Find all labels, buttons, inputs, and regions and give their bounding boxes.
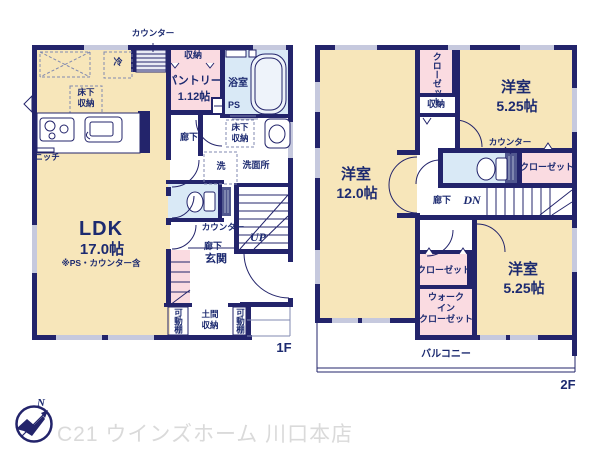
label-ldk-note: ※PS・カウンター含 bbox=[61, 259, 140, 268]
label-ldk-size: 17.0帖 bbox=[80, 242, 124, 258]
label-wic-3: クローゼット bbox=[419, 315, 473, 324]
label-closet-bl: クローゼット bbox=[417, 266, 471, 275]
label-closet-top: クローゼット bbox=[431, 52, 440, 106]
label-hallway-lower: 廊下 bbox=[204, 242, 222, 251]
label-room-br-size: 5.25帖 bbox=[503, 281, 544, 296]
label-floor-2f: 2F bbox=[560, 378, 575, 392]
floor2-stairs bbox=[487, 188, 572, 215]
label-fridge: 冷 bbox=[113, 58, 122, 67]
watermark-text: C21 ウインズホーム 川口本店 bbox=[57, 418, 353, 448]
vent-icon bbox=[24, 96, 32, 112]
label-washer: 洗 bbox=[216, 162, 225, 171]
label-hallway-2f: 廊下 bbox=[433, 196, 451, 205]
label-room-br-name: 洋室 bbox=[508, 262, 538, 278]
label-wash-underfloor-1: 床下 bbox=[231, 123, 248, 132]
label-up: UP bbox=[250, 231, 266, 244]
label-ps: PS bbox=[228, 101, 240, 110]
label-hallway-upper: 廊下 bbox=[180, 133, 198, 142]
label-shelf-right: 可動棚 bbox=[236, 308, 245, 334]
label-wic-2: イン bbox=[437, 304, 455, 313]
label-pantry-storage: 収納 bbox=[184, 51, 202, 60]
label-room-left-size: 12.0帖 bbox=[336, 186, 377, 201]
label-room-left-name: 洋室 bbox=[341, 167, 371, 183]
label-storage-2f: 収納 bbox=[427, 100, 445, 109]
compass-icon bbox=[16, 407, 52, 442]
label-dn: DN bbox=[463, 194, 480, 207]
label-bath: 浴室 bbox=[228, 79, 248, 90]
label-counter-top: カウンター bbox=[132, 29, 175, 38]
label-underfloor-1: 床下 bbox=[77, 88, 94, 97]
label-floor-1f: 1F bbox=[276, 341, 291, 355]
label-ldk-name: LDK bbox=[79, 219, 123, 240]
label-room-tr-size: 5.25帖 bbox=[496, 99, 537, 114]
label-wic-1: ウォーク bbox=[428, 293, 464, 302]
label-closet-right: クローゼット bbox=[520, 163, 574, 172]
label-counter-2f: カウンター bbox=[489, 138, 532, 147]
label-doma-2: 収納 bbox=[201, 321, 218, 330]
label-counter-mid: カウンター bbox=[202, 223, 245, 232]
label-niche: ニッチ bbox=[34, 153, 60, 162]
label-pantry-name: パントリー bbox=[166, 76, 222, 88]
label-washroom: 洗面所 bbox=[242, 161, 269, 170]
label-compass-n: N bbox=[37, 398, 45, 410]
floorplan-page: カウンター 冷 床下 収納 ニッチ LDK 17.0帖 ※PS・カウンター含 収… bbox=[0, 0, 600, 450]
label-underfloor-2: 収納 bbox=[77, 99, 94, 108]
label-pantry-size: 1.12帖 bbox=[178, 92, 210, 104]
label-room-tr-name: 洋室 bbox=[501, 80, 531, 96]
label-entrance: 玄関 bbox=[205, 254, 227, 266]
label-wash-underfloor-2: 収納 bbox=[231, 134, 248, 143]
label-doma-1: 土間 bbox=[201, 310, 218, 319]
label-shelf-left: 可動棚 bbox=[174, 308, 183, 334]
label-balcony: バルコニー bbox=[421, 350, 471, 361]
